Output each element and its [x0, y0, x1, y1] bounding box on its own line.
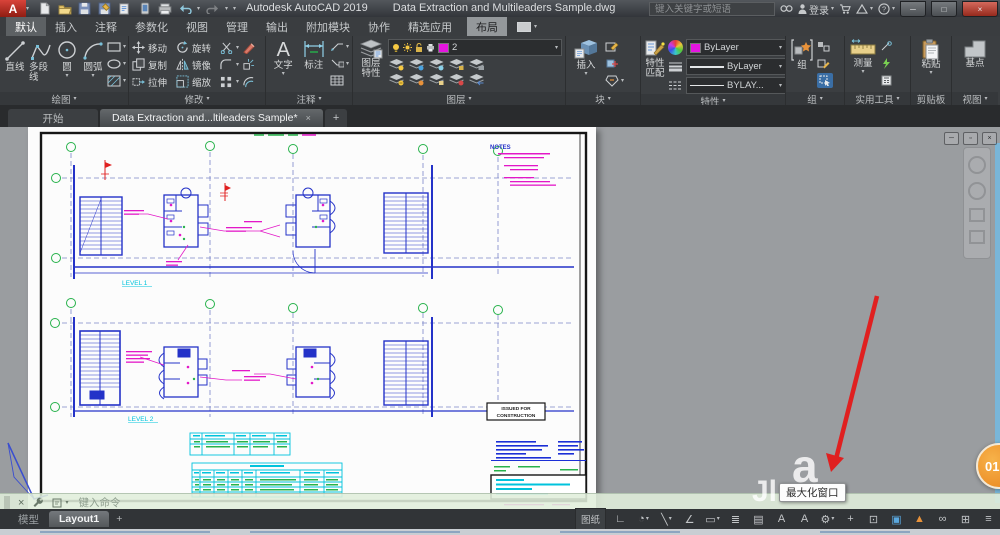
- page-edge-strip: [0, 529, 1000, 535]
- panel-utilities: 测量 ▾ 实用工具▾: [845, 36, 910, 105]
- measure-caret-icon: ▾: [861, 69, 864, 75]
- ribbon-tab-insert[interactable]: 插入: [46, 17, 86, 36]
- panel-utilities-caret-icon: ▾: [897, 96, 900, 102]
- ribbon-display-icon: [517, 22, 531, 32]
- file-tab-start[interactable]: 开始: [8, 109, 98, 127]
- array-button[interactable]: ▾: [220, 76, 242, 88]
- clean-screen-toggle[interactable]: ⊞: [954, 509, 977, 529]
- scale-icon: [176, 75, 189, 88]
- line-icon: [3, 39, 27, 63]
- layer-off-button[interactable]: [388, 58, 405, 71]
- ungroup-icon: [817, 41, 830, 52]
- id-point-button[interactable]: [880, 39, 893, 54]
- circle-caret-icon: ▾: [65, 73, 68, 79]
- id-point-icon: [880, 41, 893, 52]
- table-button[interactable]: [330, 73, 349, 88]
- command-close-icon[interactable]: ×: [18, 497, 24, 509]
- panel-properties: 特性 匹配 ByLayer ▾ ByLay: [641, 36, 785, 105]
- ribbon-display-toggle[interactable]: ▾: [517, 17, 537, 36]
- explode-icon: [242, 59, 255, 71]
- lineweight-list-icon: [668, 61, 683, 72]
- offset-button[interactable]: [242, 76, 260, 88]
- document-name: Data Extraction and Multileaders Sample.…: [393, 2, 616, 14]
- layer-unlock-button[interactable]: [428, 73, 445, 86]
- fillet-icon: [220, 59, 233, 71]
- ribbon-tab-addins[interactable]: 附加模块: [297, 17, 359, 36]
- rectangle-caret-icon: ▾: [123, 44, 126, 50]
- ribbon-tab-featured-apps[interactable]: 精选应用: [399, 17, 461, 36]
- trim-caret-icon: ▾: [236, 45, 239, 51]
- help-caret-icon: ▾: [892, 6, 895, 12]
- panel-title-clipboard[interactable]: 剪贴板: [911, 92, 951, 105]
- redo-caret-icon[interactable]: ▾: [225, 6, 228, 12]
- group-icon: [791, 39, 813, 61]
- svg-text:CONSTRUCTION: CONSTRUCTION: [497, 413, 536, 419]
- paste-button[interactable]: 粘贴 ▾: [917, 39, 945, 76]
- panel-layers-caret-icon: ▾: [469, 96, 472, 102]
- panel-draw-caret-icon: ▾: [74, 96, 77, 102]
- help-icon[interactable]: ?▾: [878, 3, 895, 15]
- panel-title-groups[interactable]: 组▾: [786, 92, 844, 105]
- stretch-button[interactable]: 拉伸: [132, 75, 176, 89]
- panel-block: 插入 ▾ ▾ 块▾: [566, 36, 640, 105]
- help-search-box[interactable]: [649, 2, 775, 16]
- layer-plot-icon: [426, 43, 435, 52]
- circle-button[interactable]: 圆 ▾: [55, 39, 79, 79]
- model-tab[interactable]: 模型: [8, 510, 49, 529]
- array-icon: [220, 76, 233, 88]
- layout1-tab[interactable]: Layout1: [49, 511, 109, 527]
- hatch-button[interactable]: ▾: [107, 73, 126, 88]
- copy-button[interactable]: 复制: [132, 58, 176, 72]
- polar-tracking-toggle[interactable]: ◔▾: [632, 509, 655, 529]
- copy-icon: [132, 58, 145, 71]
- layer-properties-button[interactable]: 图层 特性: [356, 39, 386, 79]
- application-menu-caret-icon[interactable]: ▾: [26, 6, 29, 12]
- performance-recorder-toggle[interactable]: ▲: [908, 509, 931, 529]
- qat-customize-caret-icon[interactable]: ▾: [233, 6, 236, 12]
- mirror-button[interactable]: 镜像: [176, 58, 220, 72]
- layer-plot-button[interactable]: [468, 58, 485, 71]
- hatch-caret-icon: ▾: [123, 78, 126, 84]
- group-selection-icon: [819, 75, 831, 86]
- annotation-visibility-toggle[interactable]: A: [770, 509, 793, 529]
- quick-select-icon: [880, 58, 893, 69]
- help-search-input[interactable]: [653, 3, 771, 16]
- layer-properties-icon: [359, 39, 383, 59]
- layer-color-swatch: [438, 43, 449, 53]
- recent-commands-icon[interactable]: ▾: [52, 498, 68, 508]
- ungroup-button[interactable]: [817, 39, 833, 54]
- ellipse-button[interactable]: ▾: [107, 56, 126, 71]
- workspace-switching-button[interactable]: ⚙▾: [816, 509, 839, 529]
- autodesk-account-icon[interactable]: ▾: [856, 4, 873, 14]
- layer-lock-button[interactable]: [448, 58, 465, 71]
- lineweight-toggle[interactable]: ≣: [724, 509, 747, 529]
- base-point-button[interactable]: 基点: [959, 39, 991, 69]
- lineweight-combo[interactable]: ByLayer ▾: [686, 58, 786, 75]
- redo-icon[interactable]: [205, 2, 220, 15]
- leader-button[interactable]: ▾: [330, 39, 349, 54]
- object-color-swatch: [690, 43, 701, 53]
- dimension-icon: [302, 39, 326, 61]
- ribbon-tab-annotate[interactable]: 注释: [86, 17, 126, 36]
- annotation-arrow: [826, 296, 877, 472]
- multileader-icon: [330, 58, 344, 69]
- rectangle-icon: [107, 41, 121, 53]
- paste-caret-icon: ▾: [929, 70, 932, 76]
- new-file-icon[interactable]: [37, 2, 52, 15]
- sign-in-menu[interactable]: 登录 ▾: [798, 2, 834, 17]
- create-block-button[interactable]: [605, 56, 624, 71]
- dimension-button[interactable]: 标注: [299, 39, 327, 71]
- leader-caret-icon: ▾: [346, 44, 349, 50]
- doc-close-button[interactable]: ×: [982, 132, 997, 145]
- mirror-icon: [176, 58, 189, 71]
- status-toggles: 图纸 ∟ ◔▾ ╲▾ ∠ ▭▾ ≣ ▤ A A ⚙▾ + ⊡ ▣ ▲ ∞ ⊞ ≡: [575, 509, 1000, 529]
- layer-isolate-button[interactable]: [408, 58, 425, 71]
- application-menu-button[interactable]: A: [0, 0, 26, 17]
- text-icon: A: [277, 39, 290, 61]
- doc-restore-button[interactable]: ▫: [963, 132, 978, 145]
- text-button[interactable]: A 文字 ▾: [269, 39, 297, 77]
- rectangle-button[interactable]: ▾: [107, 39, 126, 54]
- isodraft-caret-icon: ▾: [669, 516, 672, 522]
- lineweight-sample: [690, 66, 724, 68]
- group-selection-toggle[interactable]: [817, 73, 833, 88]
- polyline-button[interactable]: 多段线: [29, 39, 53, 83]
- erase-icon: [242, 42, 255, 54]
- linetype-sample: [690, 85, 724, 86]
- color-combo-caret-icon: ▾: [779, 45, 782, 51]
- svg-text:NOTES: NOTES: [490, 145, 511, 151]
- autocad-window: { "window": { "app_initial": "A", "produ…: [0, 0, 1000, 535]
- save-icon[interactable]: [77, 2, 92, 15]
- quick-calc-button[interactable]: [880, 73, 893, 88]
- ellipse-icon: [107, 58, 121, 70]
- line-button[interactable]: 直线: [3, 39, 27, 73]
- edit-attributes-button[interactable]: [605, 39, 624, 54]
- measure-icon: [850, 39, 876, 59]
- group-edit-icon: [817, 58, 830, 69]
- panel-title-annotation[interactable]: 注释▾: [266, 92, 352, 105]
- panel-block-caret-icon: ▾: [608, 96, 611, 102]
- ribbon-tab-layout[interactable]: 布局: [467, 17, 507, 36]
- ribbon-tab-view[interactable]: 视图: [177, 17, 217, 36]
- plot-icon[interactable]: [157, 2, 172, 15]
- leader-icon: [330, 41, 344, 52]
- panel-annotation: A 文字 ▾ 标注 ▾ ▾ 注释▾: [266, 36, 352, 105]
- dynamic-input-toggle[interactable]: ▭▾: [701, 509, 724, 529]
- panel-title-block[interactable]: 块▾: [566, 92, 640, 105]
- annotation-monitor-toggle[interactable]: +: [839, 509, 862, 529]
- svg-text:ISSUED FOR: ISSUED FOR: [501, 406, 531, 412]
- ellipse-caret-icon: ▾: [123, 61, 126, 67]
- open-file-icon[interactable]: [57, 2, 72, 15]
- block-attributes-button[interactable]: ▾: [605, 73, 624, 88]
- file-tab-active-drawing[interactable]: Data Extraction and...ltileaders Sample*…: [100, 109, 323, 127]
- trim-button[interactable]: ▾: [220, 42, 242, 54]
- ribbon-tab-home[interactable]: 默认: [6, 17, 46, 36]
- full-navigation-wheel-icon[interactable]: [968, 156, 986, 174]
- ribbon-tab-collaborate[interactable]: 协作: [359, 17, 399, 36]
- transparency-toggle[interactable]: ▤: [747, 509, 770, 529]
- circle-icon: [55, 39, 79, 63]
- rotate-icon: [176, 41, 189, 54]
- maximize-viewport-tooltip: 最大化窗口: [779, 483, 846, 502]
- navigation-bar[interactable]: [963, 147, 991, 259]
- search-icon[interactable]: [780, 4, 793, 14]
- minimize-button[interactable]: ─: [900, 1, 926, 17]
- linetype-caret-icon: ▾: [779, 83, 782, 89]
- account-caret-icon: ▾: [870, 6, 873, 12]
- panel-title-modify[interactable]: 修改▾: [129, 92, 265, 105]
- panel-title-view[interactable]: 视图▾: [952, 92, 998, 105]
- arc-icon: [81, 39, 105, 63]
- layer-freeze-sun-icon: [403, 43, 412, 52]
- edit-attributes-icon: [605, 41, 619, 53]
- move-icon: [132, 41, 145, 54]
- panel-layers: 图层 特性 2 ▾: [353, 36, 565, 105]
- insert-block-icon: [573, 39, 599, 61]
- layer-select-combo[interactable]: 2 ▾: [388, 39, 562, 56]
- svg-text:LEVEL 1: LEVEL 1: [122, 280, 148, 287]
- undo-caret-icon[interactable]: ▾: [197, 6, 200, 12]
- ortho-mode-toggle[interactable]: ∟: [609, 509, 632, 529]
- measure-button[interactable]: 测量 ▾: [848, 39, 878, 75]
- match-properties-icon: [644, 39, 666, 59]
- paper-space-toggle[interactable]: 图纸: [575, 508, 606, 530]
- current-layer-name: 2: [452, 42, 457, 53]
- multileader-caret-icon: ▾: [346, 61, 349, 67]
- group-edit-button[interactable]: [817, 56, 833, 71]
- erase-button[interactable]: [242, 42, 260, 54]
- ribbon-tab-manage[interactable]: 管理: [217, 17, 257, 36]
- panel-title-draw[interactable]: 绘图▾: [0, 92, 128, 105]
- move-button[interactable]: 移动: [132, 41, 176, 55]
- layer-thaw-button[interactable]: [408, 73, 425, 86]
- panel-view-caret-icon: ▾: [985, 96, 988, 102]
- scale-button[interactable]: 缩放: [176, 75, 220, 89]
- multileader-button[interactable]: ▾: [330, 56, 349, 71]
- customize-status-button[interactable]: ≡: [977, 509, 1000, 529]
- maximize-button[interactable]: □: [931, 1, 957, 17]
- panel-modify-caret-icon: ▾: [207, 96, 210, 102]
- layer-lock-icon: [415, 43, 423, 53]
- panel-title-utilities[interactable]: 实用工具▾: [845, 92, 910, 105]
- panel-view: 基点 视图▾: [952, 36, 998, 105]
- product-name: Autodesk AutoCAD 2019: [246, 2, 368, 14]
- lineweight-caret-icon: ▾: [779, 64, 782, 70]
- step-number-badge: 01: [976, 443, 1000, 489]
- quick-calc-icon: [880, 75, 893, 86]
- dyninput-caret-icon: ▾: [717, 516, 720, 522]
- insert-caret-icon: ▾: [584, 71, 587, 77]
- sign-in-label: 登录: [809, 2, 829, 17]
- panel-clipboard: 粘贴 ▾ 剪贴板: [911, 36, 951, 105]
- text-caret-icon: ▾: [282, 71, 285, 77]
- arc-button[interactable]: 圆弧 ▾: [81, 39, 105, 79]
- graphics-performance-toggle[interactable]: ▣: [885, 509, 908, 529]
- pan-tool-icon[interactable]: [968, 182, 986, 200]
- table-icon: [330, 75, 344, 86]
- sign-in-caret-icon: ▾: [831, 6, 834, 12]
- offset-icon: [242, 76, 255, 88]
- window-title: Autodesk AutoCAD 2019 Data Extraction an…: [246, 2, 615, 14]
- close-button[interactable]: ×: [962, 1, 998, 17]
- doc-minimize-button[interactable]: ─: [944, 132, 959, 145]
- orbit-tool-icon[interactable]: [969, 230, 985, 244]
- paper-sheet[interactable]: NOTES LEVEL 1 LEVEL 2 ISSUED FOR CONSTRU…: [28, 127, 596, 509]
- drawing-sheet-graphic: NOTES LEVEL 1 LEVEL 2 ISSUED FOR CONSTRU…: [28, 127, 596, 509]
- paste-icon: [922, 39, 940, 60]
- undo-icon[interactable]: [177, 2, 192, 15]
- command-input[interactable]: [76, 496, 1000, 509]
- panel-groups-caret-icon: ▾: [820, 96, 823, 102]
- object-snap-tracking-toggle[interactable]: ∠: [678, 509, 701, 529]
- command-line-grip[interactable]: [4, 496, 10, 509]
- save-as-icon[interactable]: [97, 2, 112, 15]
- annotation-autoscale-toggle[interactable]: A: [793, 509, 816, 529]
- file-tab-bar: 开始 Data Extraction and...ltileaders Samp…: [0, 105, 1000, 127]
- create-block-icon: [605, 58, 619, 70]
- layer-match-button[interactable]: [448, 73, 465, 86]
- explode-button[interactable]: [242, 59, 260, 71]
- new-drawing-tab-button[interactable]: +: [325, 109, 347, 127]
- title-bar: A ▾ ▾ ▾ ▾ Autodesk AutoCAD 2019 Data Ext…: [0, 0, 1000, 18]
- drawing-area[interactable]: NOTES LEVEL 1 LEVEL 2 ISSUED FOR CONSTRU…: [0, 127, 1000, 509]
- object-color-combo[interactable]: ByLayer ▾: [686, 39, 786, 56]
- layer-on-all-button[interactable]: [388, 73, 405, 86]
- command-customize-wrench-icon[interactable]: [32, 497, 44, 509]
- status-bar: 模型 Layout1 + 图纸 ∟ ◔▾ ╲▾ ∠ ▭▾ ≣ ▤ A A ⚙▾ …: [0, 509, 1000, 529]
- zoom-tool-icon[interactable]: [969, 208, 985, 222]
- match-properties-button[interactable]: 特性 匹配: [644, 39, 666, 79]
- ribbon-tab-output[interactable]: 输出: [257, 17, 297, 36]
- polyline-icon: [29, 39, 53, 63]
- ribbon-tab-bar: 默认 插入 注释 参数化 视图 管理 输出 附加模块 协作 精选应用 布局 ▾: [0, 17, 1000, 36]
- ribbon-display-caret-icon: ▾: [534, 24, 537, 30]
- base-point-icon: [963, 39, 987, 59]
- linetype-combo[interactable]: BYLAY... ▾: [686, 77, 786, 94]
- arc-caret-icon: ▾: [91, 73, 94, 79]
- app-store-cart-icon[interactable]: [839, 4, 851, 14]
- color-wheel-icon[interactable]: [668, 40, 683, 55]
- rotate-button[interactable]: 旋转: [176, 41, 220, 55]
- block-attr-caret-icon: ▾: [621, 78, 624, 84]
- isodraft-toggle[interactable]: ╲▾: [655, 509, 678, 529]
- block-attributes-icon: [605, 75, 619, 87]
- panel-annotation-caret-icon: ▾: [319, 96, 322, 102]
- layer-combo-caret-icon: ▾: [555, 45, 558, 51]
- panel-groups: 组 组▾: [786, 36, 844, 105]
- linetype-list-icon: [668, 80, 683, 91]
- array-caret-icon: ▾: [236, 79, 239, 85]
- group-button[interactable]: 组: [789, 39, 815, 71]
- hatch-icon: [107, 75, 121, 87]
- panel-modify: 移动 旋转 ▾ 复制 镜像 ▾ 拉伸 缩放 ▾ 修改▾: [129, 36, 265, 105]
- workspace-caret-icon: ▾: [831, 516, 834, 522]
- insert-block-button[interactable]: 插入 ▾: [569, 39, 603, 77]
- trim-scissors-icon: [220, 42, 233, 54]
- fillet-caret-icon: ▾: [236, 62, 239, 68]
- quick-select-button[interactable]: [880, 56, 893, 71]
- layer-on-bulb-icon: [392, 43, 400, 53]
- new-layout-button[interactable]: +: [109, 511, 129, 527]
- layer-previous-button[interactable]: [468, 73, 485, 86]
- mobile-icon[interactable]: [137, 2, 152, 15]
- file-tab-close-icon[interactable]: ×: [306, 113, 311, 123]
- ribbon-tab-parametric[interactable]: 参数化: [126, 17, 177, 36]
- polar-caret-icon: ▾: [646, 516, 649, 522]
- document-window-controls: ─ ▫ ×: [944, 132, 997, 145]
- svg-text:LEVEL 2: LEVEL 2: [128, 416, 154, 423]
- ribbon: 直线 多段线 圆 ▾ 圆弧 ▾ ▾ ▾ ▾ 绘图▾: [0, 36, 1000, 106]
- quick-access-toolbar: ▾ ▾ ▾: [37, 2, 236, 15]
- stretch-icon: [132, 76, 145, 88]
- panel-title-layers[interactable]: 图层▾: [353, 92, 565, 105]
- user-icon: [798, 4, 807, 14]
- command-line-bar[interactable]: × ▾: [0, 493, 1000, 509]
- panel-properties-caret-icon: ▾: [723, 98, 726, 104]
- recent-commands-caret-icon: ▾: [65, 500, 68, 506]
- autocad-logo-icon: A: [9, 2, 18, 16]
- svg-text:?: ?: [882, 4, 886, 13]
- fillet-button[interactable]: ▾: [220, 59, 242, 71]
- panel-draw: 直线 多段线 圆 ▾ 圆弧 ▾ ▾ ▾ ▾ 绘图▾: [0, 36, 128, 105]
- autodesk-online-button[interactable]: ∞: [931, 509, 954, 529]
- sheet-set-icon[interactable]: [117, 2, 132, 15]
- layer-freeze-button[interactable]: [428, 58, 445, 71]
- units-button[interactable]: ⊡: [862, 509, 885, 529]
